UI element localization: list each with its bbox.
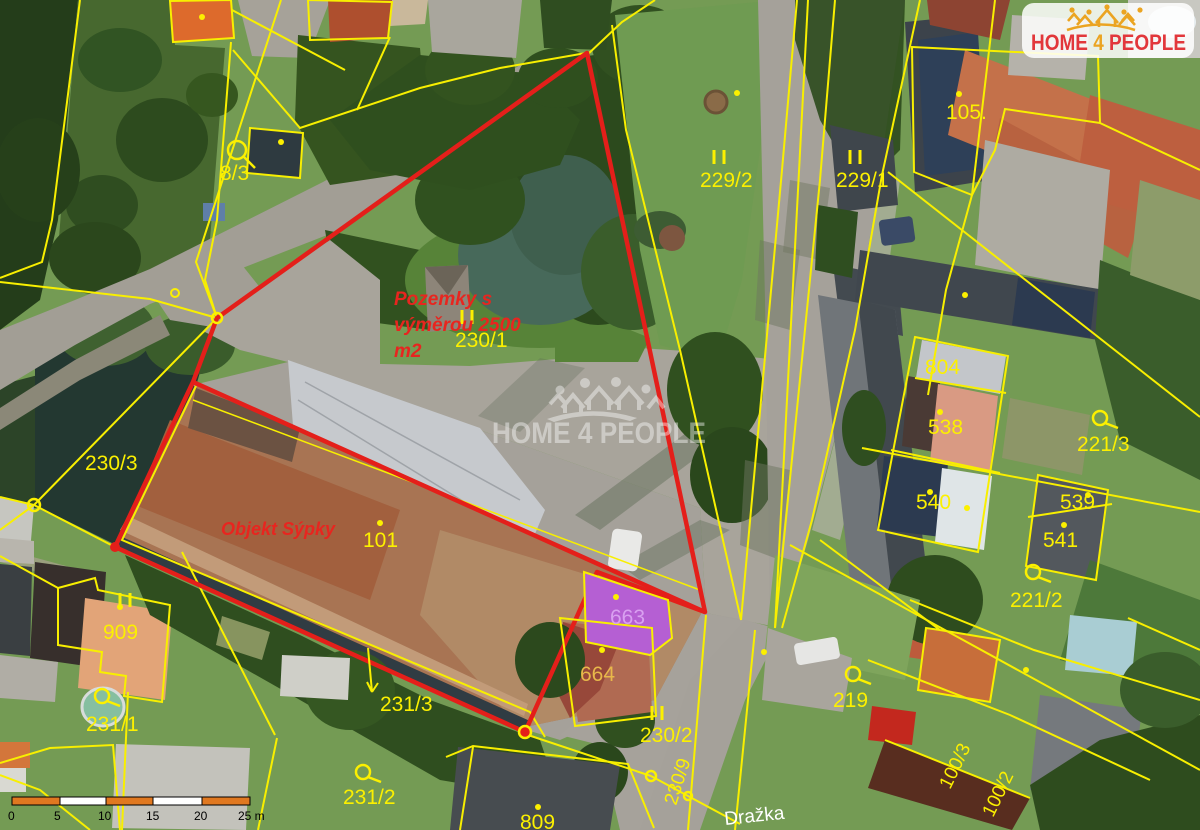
svg-text:Pozemky s: Pozemky s [394,289,492,310]
svg-text:804: 804 [925,356,960,379]
svg-text:0: 0 [8,809,15,823]
svg-text:221/2: 221/2 [1010,589,1063,612]
svg-text:540: 540 [916,491,951,514]
svg-text:10: 10 [98,809,112,823]
svg-text:101: 101 [363,529,398,552]
svg-text:541: 541 [1043,529,1078,552]
svg-text:231/2: 231/2 [343,786,396,809]
svg-text:663: 663 [610,606,645,629]
svg-text:8/3: 8/3 [220,162,249,185]
svg-text:231/3: 231/3 [380,693,433,716]
svg-text:5: 5 [54,809,61,823]
svg-text:25 m: 25 m [238,809,265,823]
svg-text:229/1: 229/1 [836,169,889,192]
svg-text:538: 538 [928,416,963,439]
svg-text:výměrou 2500: výměrou 2500 [394,315,521,336]
svg-text:219: 219 [833,689,868,712]
svg-text:15: 15 [146,809,160,823]
svg-text:909: 909 [103,621,138,644]
svg-text:664: 664 [580,663,615,686]
svg-text:809: 809 [520,811,555,830]
svg-text:230/3: 230/3 [85,452,138,475]
svg-text:229/2: 229/2 [700,169,753,192]
svg-text:HOME 4 PEOPLE: HOME 4 PEOPLE [1031,30,1186,55]
svg-text:m2: m2 [394,341,422,362]
svg-text:HOME 4 PEOPLE: HOME 4 PEOPLE [492,417,706,450]
svg-text:20: 20 [194,809,208,823]
svg-text:105.: 105. [946,101,987,124]
svg-text:230/2: 230/2 [640,724,693,747]
svg-text:231/1: 231/1 [86,713,139,736]
svg-text:221/3: 221/3 [1077,433,1130,456]
svg-text:Objekt Sýpky: Objekt Sýpky [221,519,336,539]
